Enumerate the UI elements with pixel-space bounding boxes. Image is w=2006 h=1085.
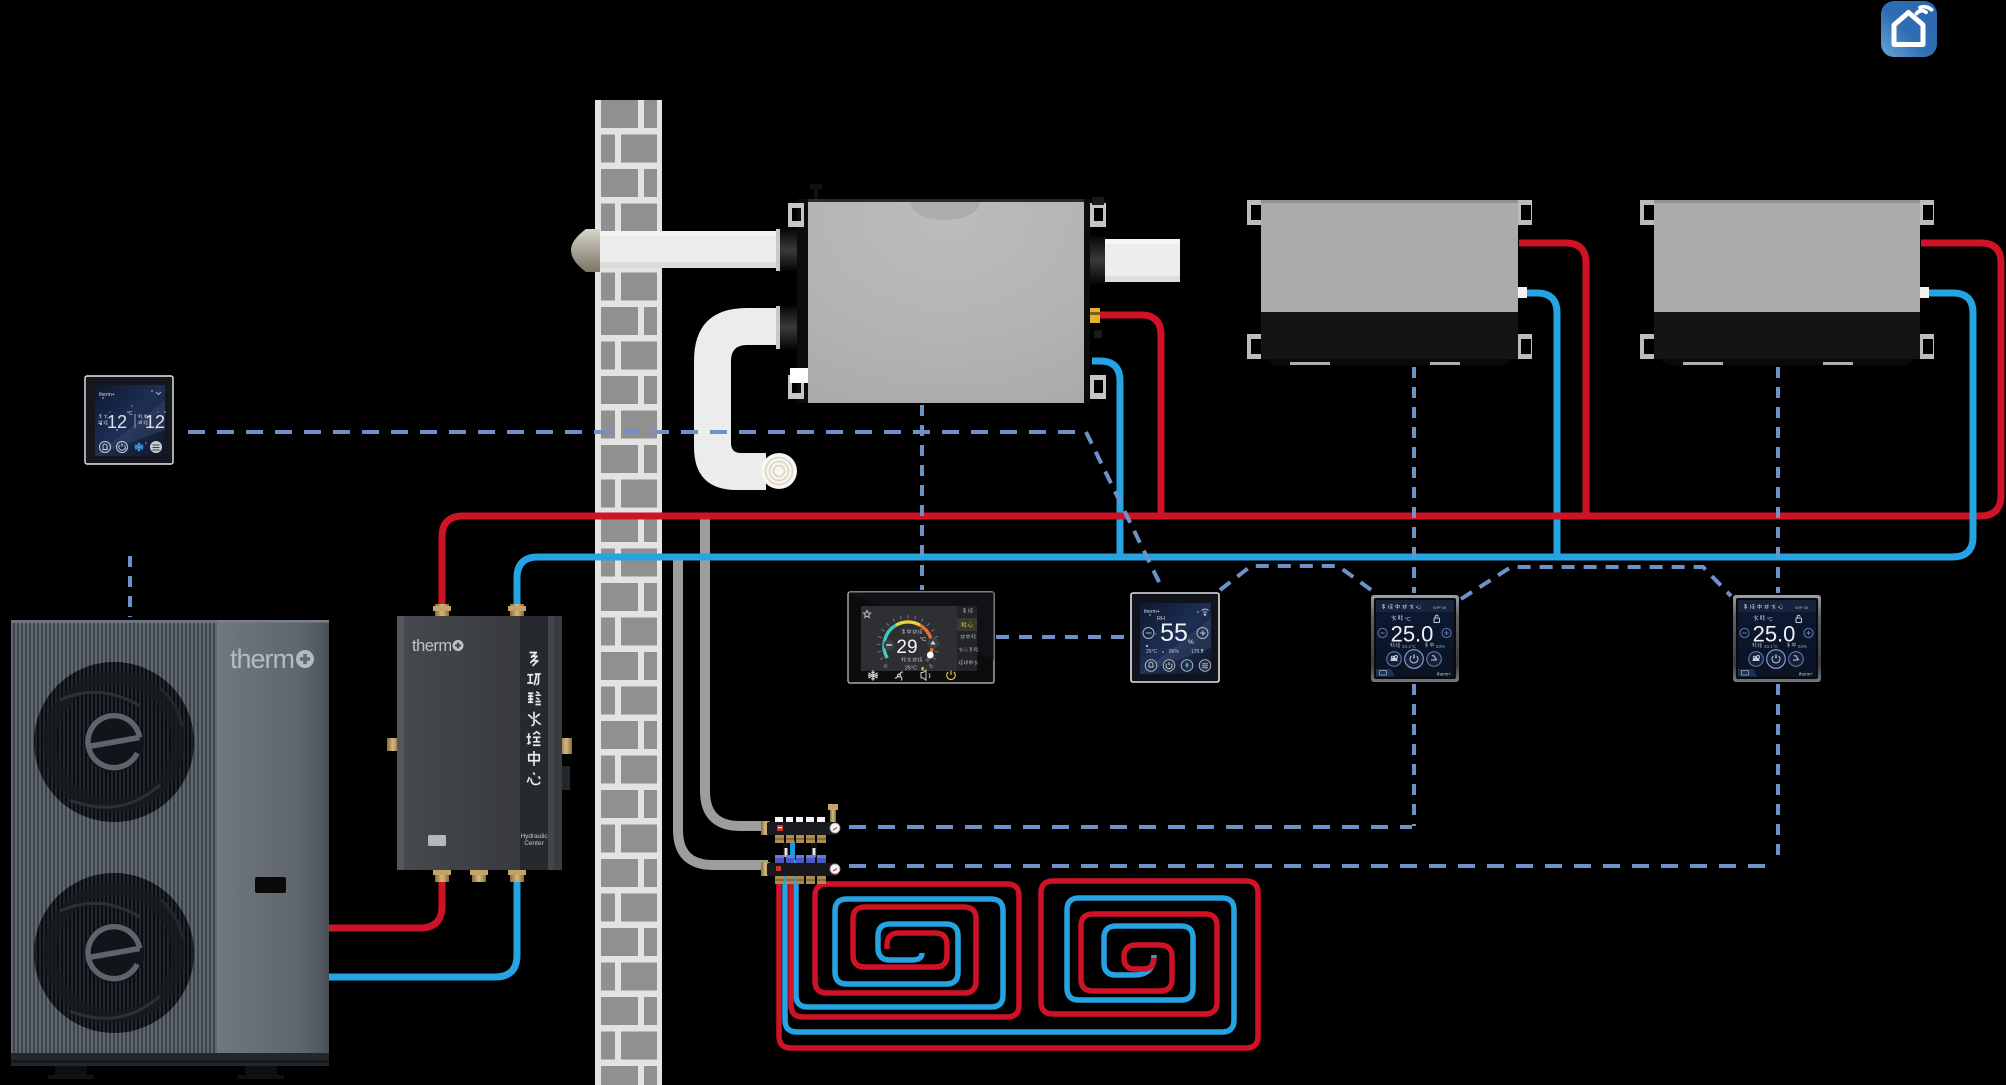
svg-text:WIP 08: WIP 08: [1795, 605, 1809, 610]
svg-text:53%: 53%: [1436, 644, 1445, 649]
svg-text:86%: 86%: [1169, 649, 1180, 655]
svg-text:33.1°C: 33.1°C: [1402, 644, 1417, 649]
svg-text:WIP 08: WIP 08: [1433, 605, 1447, 610]
svg-text:°C: °C: [920, 637, 926, 643]
svg-text:29: 29: [896, 637, 917, 658]
svg-text:°: °: [164, 411, 166, 417]
svg-text:32: 32: [929, 664, 934, 669]
svg-text:therm+: therm+: [1144, 609, 1160, 615]
svg-text:Center: Center: [524, 840, 544, 847]
svg-text:25°C: 25°C: [1146, 649, 1158, 655]
svg-text:Hydraulic: Hydraulic: [520, 833, 548, 840]
svg-text:12: 12: [107, 412, 127, 432]
svg-text:16: 16: [883, 664, 888, 669]
svg-text:175.9: 175.9: [1191, 649, 1204, 655]
svg-text:therm: therm: [230, 644, 294, 674]
svg-text:°C: °C: [127, 411, 133, 417]
svg-text:therm+: therm+: [1437, 672, 1452, 677]
svg-text:33.1°C: 33.1°C: [1764, 644, 1779, 649]
svg-text:therm+: therm+: [99, 392, 115, 398]
svg-text:therm+: therm+: [1799, 672, 1814, 677]
svg-text:55: 55: [1160, 619, 1188, 647]
svg-text:%: %: [1188, 639, 1194, 646]
svg-text:therm: therm: [412, 637, 452, 655]
svg-text:12: 12: [145, 412, 165, 432]
svg-text:25°C: 25°C: [905, 666, 917, 672]
svg-text:53%: 53%: [1798, 644, 1807, 649]
